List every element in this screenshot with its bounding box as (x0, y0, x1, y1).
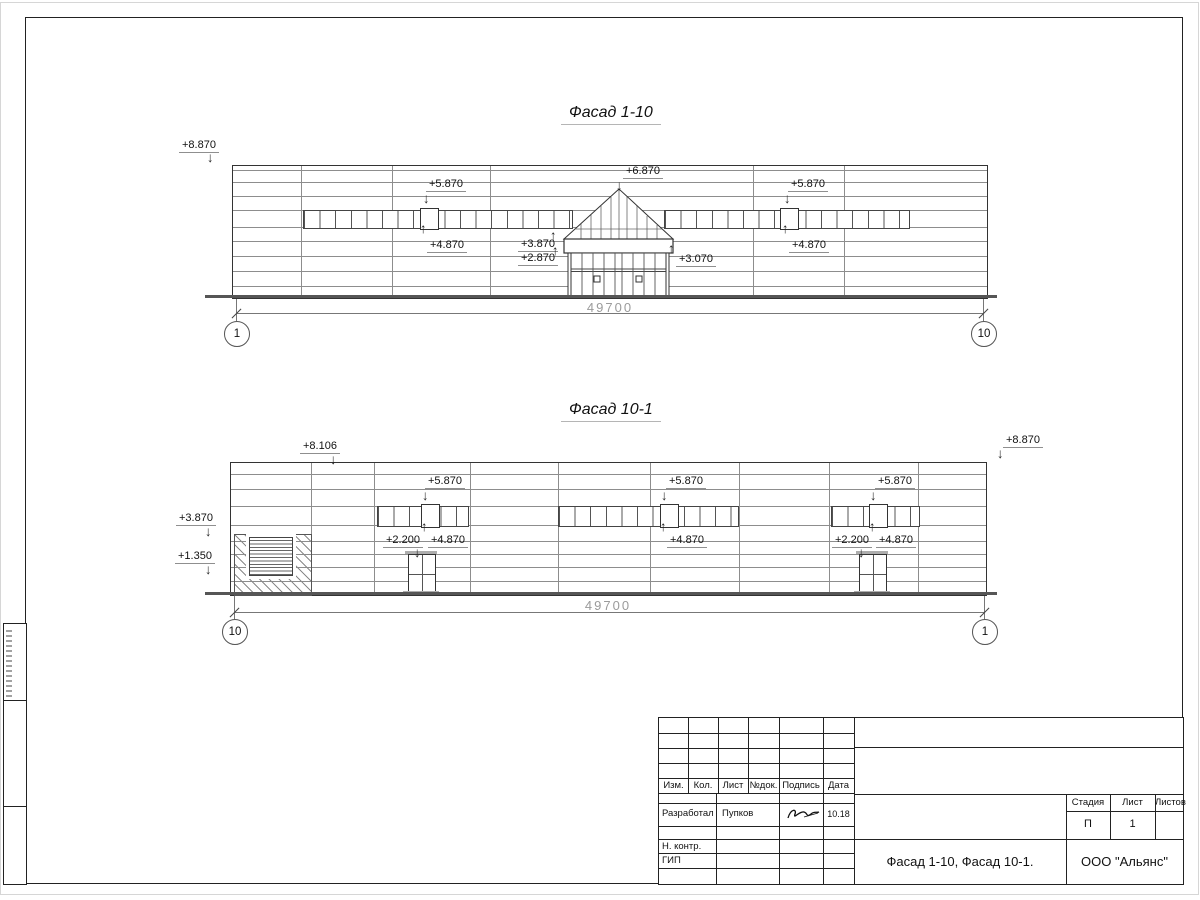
tb-col-ndok: №док. (748, 780, 779, 792)
ground-line (205, 592, 997, 595)
elevation-mark: +5.870 (425, 475, 465, 489)
panel-joint-line (650, 463, 651, 595)
elevation-arrow-down-icon: ↓ (330, 454, 337, 467)
title-block-grid-line (659, 839, 854, 840)
elevation-mark: +5.870 (875, 475, 915, 489)
elevation-arrow-down-icon: ↓ (784, 193, 791, 206)
title-block-grid-line (854, 794, 1183, 795)
tb-col-izm: Изм. (659, 780, 688, 792)
panel-joint-line (558, 463, 559, 595)
panel-joint-line (470, 463, 471, 595)
title-block-grid-line (823, 718, 824, 793)
tb-col-data: Дата (823, 780, 854, 792)
elevation-mark: +6.870 (623, 165, 663, 179)
facade-1-10-title: Фасад 1-10 (561, 104, 661, 125)
panel-joint-line (233, 182, 987, 183)
extension-line (983, 299, 984, 321)
title-block-grid-line (854, 747, 1183, 748)
title-block-grid-line (659, 868, 854, 869)
title-block-grid-line (659, 803, 854, 804)
extension-line (234, 596, 235, 619)
panel-joint-line (844, 166, 845, 298)
tb-stage-value: П (1066, 818, 1110, 830)
entrance-porch (561, 184, 676, 299)
title-block-grid-line (854, 839, 1183, 840)
left-stamp-cell (3, 806, 27, 885)
elevation-arrow-up-icon: ↑ (782, 223, 789, 236)
elevation-arrow-up-icon: ↑ (550, 230, 557, 243)
elevation-arrow-down-icon: ↓ (616, 180, 623, 193)
elevation-mark: +4.870 (667, 534, 707, 548)
elevation-mark: +4.870 (876, 534, 916, 548)
extension-line (236, 299, 237, 321)
tb-stage-label: Стадия (1066, 797, 1110, 809)
title-block-grid-line (659, 733, 854, 734)
panel-joint-line (490, 166, 491, 298)
title-block-grid-line (659, 763, 854, 764)
panel-joint-line (301, 166, 302, 298)
elevation-arrow-down-icon: ↓ (205, 526, 212, 539)
elevation-arrow-down-icon: ↓ (661, 490, 668, 503)
elevation-mark: +8.870 (1003, 434, 1043, 448)
overall-dimension: 49700 (573, 598, 643, 613)
elevation-arrow-up-icon: ↑ (421, 521, 428, 534)
door-handle-icon (594, 276, 600, 282)
title-block-grid-line (659, 748, 854, 749)
tb-developer-name: Пупков (722, 808, 753, 820)
door (408, 554, 436, 596)
tb-sheets-label: Листов (1155, 797, 1183, 809)
extension-line (984, 596, 985, 619)
elevation-arrow-up-icon: ↑ (668, 243, 675, 256)
panel-joint-line (918, 463, 919, 595)
panel-joint-line (374, 463, 375, 595)
panel-joint-line (231, 474, 986, 475)
tb-sheet-value: 1 (1110, 818, 1155, 830)
elevation-mark: +4.870 (428, 534, 468, 548)
overall-dimension: 49700 (575, 300, 645, 315)
title-block-grid-line (718, 718, 719, 793)
panel-joint-line (739, 463, 740, 595)
tb-role-developer: Разработал (662, 808, 714, 820)
elevation-mark: +3.070 (676, 253, 716, 267)
grid-axis-bubble: 10 (222, 619, 248, 645)
title-block-grid-line (779, 718, 780, 793)
elevation-arrow-up-icon: ↑ (660, 521, 667, 534)
facade-10-1-title: Фасад 10-1 (561, 401, 661, 422)
tb-col-kol: Кол. (688, 780, 718, 792)
panel-joint-line (233, 170, 987, 171)
elevation-arrow-down-icon: ↓ (858, 547, 865, 560)
elevation-arrow-down-icon: ↓ (207, 152, 214, 165)
tb-role-gip: ГИП (662, 855, 681, 867)
title-block-grid-line (1110, 794, 1111, 839)
tb-document-title: Фасад 1-10, Фасад 10-1. (854, 855, 1066, 869)
title-block-grid-line (659, 853, 854, 854)
tb-col-list: Лист (718, 780, 748, 792)
elevation-mark: +5.870 (426, 178, 466, 192)
left-stamp-cell (3, 700, 27, 808)
elevation-mark: +2.200 (832, 534, 872, 548)
elevation-arrow-up-icon: ↑ (420, 223, 427, 236)
elevation-arrow-down-icon: ↓ (997, 448, 1004, 461)
panel-joint-line (392, 166, 393, 298)
elevation-arrow-down-icon: ↓ (423, 193, 430, 206)
signature (784, 805, 820, 823)
grid-axis-bubble: 1 (224, 321, 250, 347)
tb-company: ООО "Альянс" (1066, 855, 1183, 869)
tb-col-podpis: Подпись (779, 780, 823, 792)
title-block: Изм. Кол. Лист №док. Подпись Дата Разраб… (658, 717, 1184, 885)
title-block-grid-line (659, 778, 854, 779)
title-block-grid-line (659, 793, 854, 794)
grid-axis-bubble: 1 (972, 619, 998, 645)
elevation-arrow-down-icon: ↓ (205, 564, 212, 577)
elevation-arrow-up-icon: ↑ (552, 245, 559, 258)
tb-sheet-label: Лист (1110, 797, 1155, 809)
title-block-grid-line (1066, 811, 1183, 812)
title-block-grid-line (1155, 794, 1156, 839)
elevation-arrow-up-icon: ↑ (869, 521, 876, 534)
panel-joint-line (753, 166, 754, 298)
panel-joint-line (829, 463, 830, 595)
elevation-mark: +5.870 (666, 475, 706, 489)
door-handle-icon (636, 276, 642, 282)
title-block-grid-line (748, 718, 749, 793)
title-block-grid-line (688, 718, 689, 793)
ground-line (205, 295, 997, 298)
facade-1-10-drawing (232, 165, 988, 299)
panel-joint-line (231, 541, 986, 542)
grid-axis-bubble: 10 (971, 321, 997, 347)
tb-role-ncontr: Н. контр. (662, 841, 701, 853)
louver-grille (249, 537, 293, 576)
elevation-mark: +4.870 (789, 239, 829, 253)
tb-date: 10.18 (823, 809, 854, 819)
window-band (558, 506, 739, 527)
elevation-arrow-down-icon: ↓ (870, 490, 877, 503)
elevation-mark: +5.870 (788, 178, 828, 192)
elevation-mark: +4.870 (427, 239, 467, 253)
elevation-arrow-down-icon: ↓ (414, 547, 421, 560)
title-block-grid-line (659, 826, 854, 827)
elevation-arrow-down-icon: ↓ (422, 490, 429, 503)
drawing-sheet: Фасад 1-10 (0, 0, 1200, 900)
left-stamp-text-hint (6, 627, 12, 697)
title-block-grid-line (854, 718, 855, 884)
